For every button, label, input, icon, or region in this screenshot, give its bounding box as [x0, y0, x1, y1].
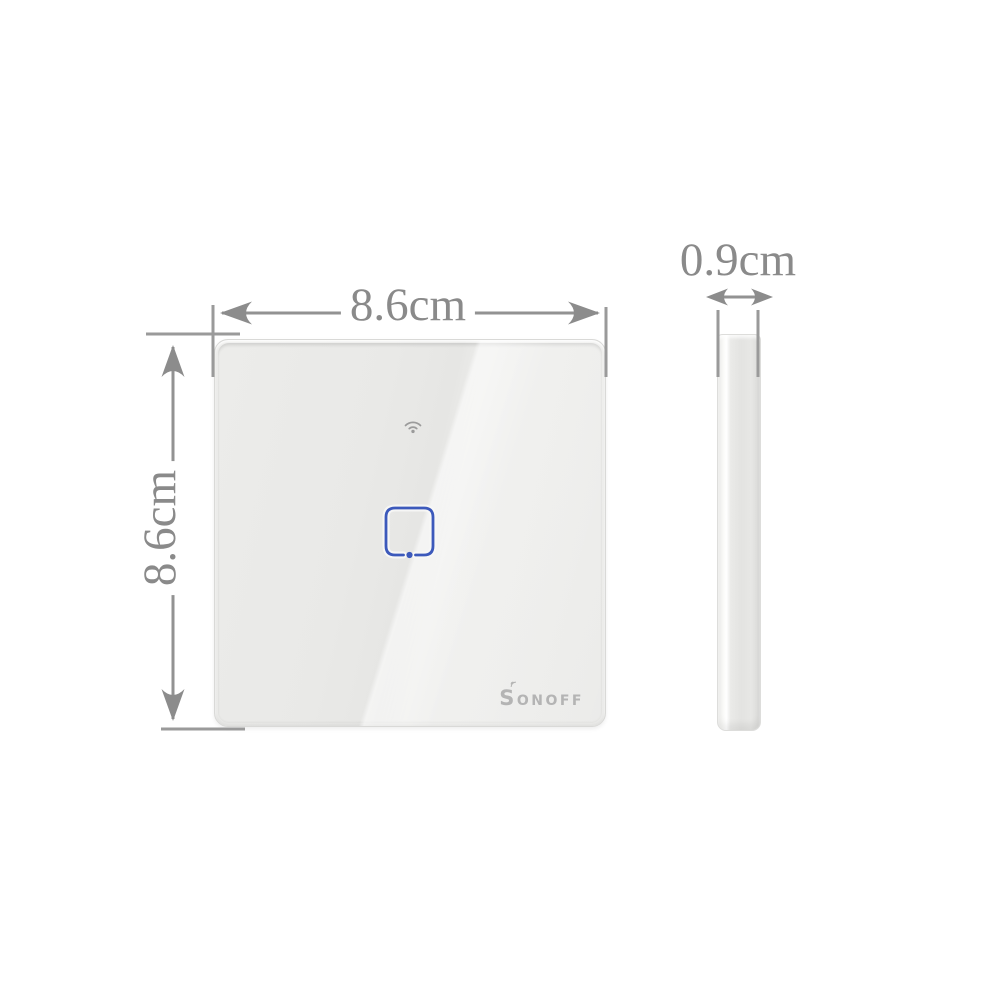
width-dim-arrowhead-right — [568, 302, 600, 325]
touch-button-dot — [406, 552, 412, 558]
brand-logo: SONOFF — [499, 688, 584, 709]
height-dimension-label: 8.6cm — [135, 461, 187, 595]
switch-front-view: SONOFF — [214, 339, 606, 727]
wifi-outer-arc — [406, 422, 421, 425]
depth-dim-arrowhead-left — [706, 289, 728, 306]
switch-side-view — [717, 334, 761, 731]
touch-button-outline — [386, 508, 433, 555]
wifi-dot — [411, 430, 414, 433]
width-dim-arrowhead-left — [220, 302, 252, 325]
product-dimension-figure: SONOFF 8.6cm 8.6cm 0.9cm — [0, 0, 1000, 1000]
touch-button-glow — [386, 508, 433, 555]
wifi-icon — [402, 415, 424, 434]
touch-button-icon — [382, 504, 438, 560]
width-dimension-label: 8.6cm — [341, 280, 475, 332]
signal-icon — [510, 681, 519, 690]
depth-dimension-label: 0.9cm — [676, 235, 800, 287]
height-dim-arrowhead-top — [162, 345, 185, 377]
height-dim-arrowhead-bottom — [162, 689, 185, 721]
depth-dim-arrowhead-right — [751, 289, 773, 306]
wifi-inner-arc — [409, 427, 417, 428]
brand-logo-text: SONOFF — [499, 688, 584, 709]
